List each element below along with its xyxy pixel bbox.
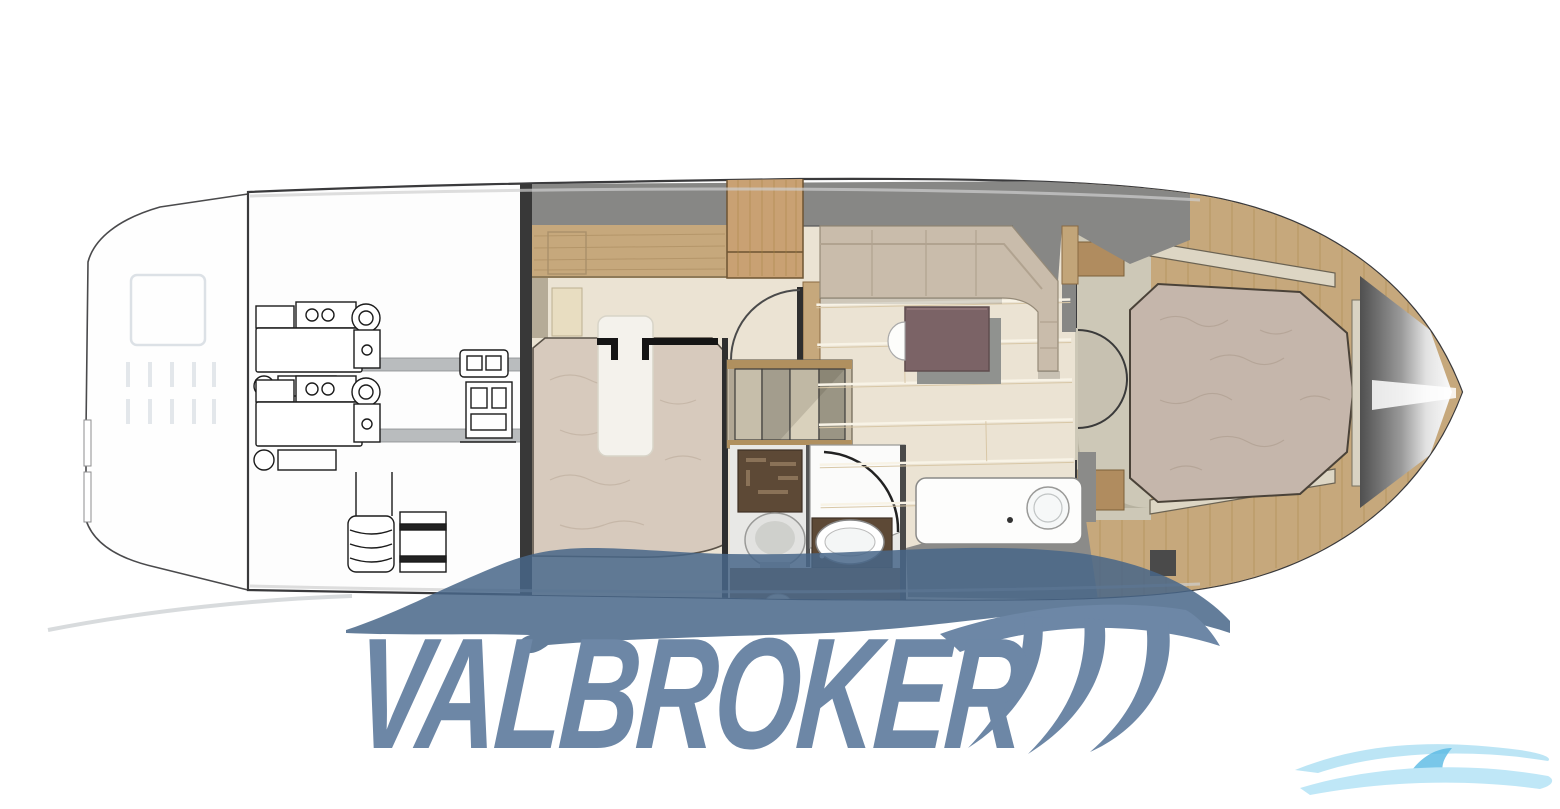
sofa-side-shadow — [1038, 371, 1060, 379]
bow-bed — [1130, 284, 1353, 502]
stair-top-rail — [727, 360, 852, 369]
dinette-wall-wood — [1062, 226, 1078, 284]
dinette-table — [905, 307, 989, 371]
galley-side-strip — [532, 278, 548, 338]
vanity-drain — [1007, 517, 1013, 523]
pump-cluster — [460, 382, 516, 442]
swim-platform — [84, 194, 248, 590]
sofa-front-shadow — [820, 298, 1002, 304]
swim-platform-outline — [86, 194, 248, 590]
watermark-lower-wave — [1300, 767, 1552, 795]
door-leaf — [797, 287, 803, 363]
platform-step-notch — [84, 472, 91, 522]
yacht-floorplan-page: VALBROKER — [0, 0, 1560, 809]
galley-cream-panel — [552, 288, 582, 336]
toilet-seat — [755, 521, 795, 555]
staircase — [727, 360, 852, 448]
berth-runner — [598, 316, 653, 456]
control-panel — [460, 350, 508, 377]
engine-room-bulkhead — [520, 184, 532, 594]
platform-step-notch — [84, 420, 91, 466]
door-sill — [803, 282, 820, 370]
hull-ground-shadow — [48, 596, 352, 630]
corner-watermark — [1295, 744, 1552, 795]
vanity-basin — [1027, 487, 1069, 529]
valbroker-wordmark: VALBROKER — [350, 615, 1029, 773]
galley-cabinet — [727, 178, 803, 278]
